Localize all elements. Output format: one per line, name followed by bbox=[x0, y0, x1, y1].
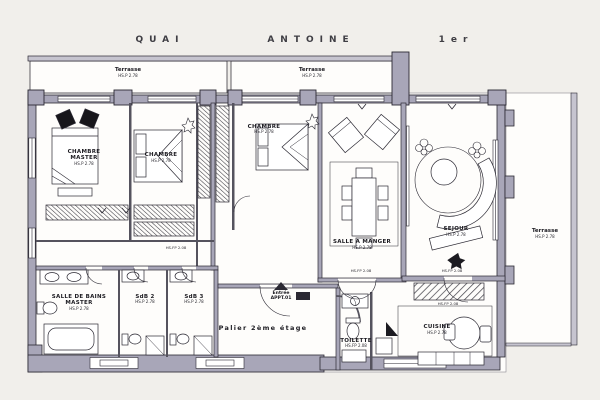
service-shaft bbox=[296, 292, 310, 300]
kitchen-counter-hatch bbox=[414, 283, 484, 300]
dim-sdb-2: HS.P 2.78 bbox=[135, 300, 154, 304]
dim-terrasse-right: HS.P 2.78 bbox=[535, 235, 554, 239]
dim-chambre-2: HS.P 2.78 bbox=[151, 159, 170, 163]
dim-sdb-3: HS.P 2.78 bbox=[184, 300, 203, 304]
label-entree-2: APPT.01 bbox=[271, 296, 292, 301]
dim-chambre-3: HS.P 2.78 bbox=[254, 130, 273, 134]
dim-toilette: HS.FP 2.08 bbox=[345, 344, 367, 348]
annotation-corridor-height: HS.FP 2.08 bbox=[166, 246, 187, 250]
dim-sdb-master: HS.P 2.78 bbox=[69, 307, 88, 311]
label-palier: Palier 2ème étage bbox=[219, 325, 308, 332]
dim-sejour: HS.P 2.78 bbox=[446, 233, 465, 237]
floorplan-page: QUAI ANTOINE 1er Terrasse HS.P 2.78 Terr… bbox=[0, 0, 600, 400]
annotation-kitchen-soffit-height: HS.FP 2.08 bbox=[438, 302, 459, 306]
dim-terrasse-mid: HS.P 2.78 bbox=[302, 74, 321, 78]
street-name-quai: QUAI bbox=[136, 35, 185, 45]
street-name-antoine: ANTOINE bbox=[267, 35, 354, 45]
dim-chambre-master: HS.P 2.78 bbox=[74, 162, 93, 166]
floorplan-drawing bbox=[0, 0, 600, 400]
annotation-sejour-door-height: HS.FP 2.08 bbox=[442, 269, 463, 273]
dim-cuisine: HS.P 2.78 bbox=[427, 331, 446, 335]
annotation-dining-door-height: HS.FP 2.08 bbox=[351, 269, 372, 273]
dim-salle-a-manger: HS.P 2.78 bbox=[352, 246, 371, 250]
street-name-1er: 1er bbox=[439, 35, 474, 45]
dim-terrasse-left: HS.P 2.78 bbox=[118, 74, 137, 78]
